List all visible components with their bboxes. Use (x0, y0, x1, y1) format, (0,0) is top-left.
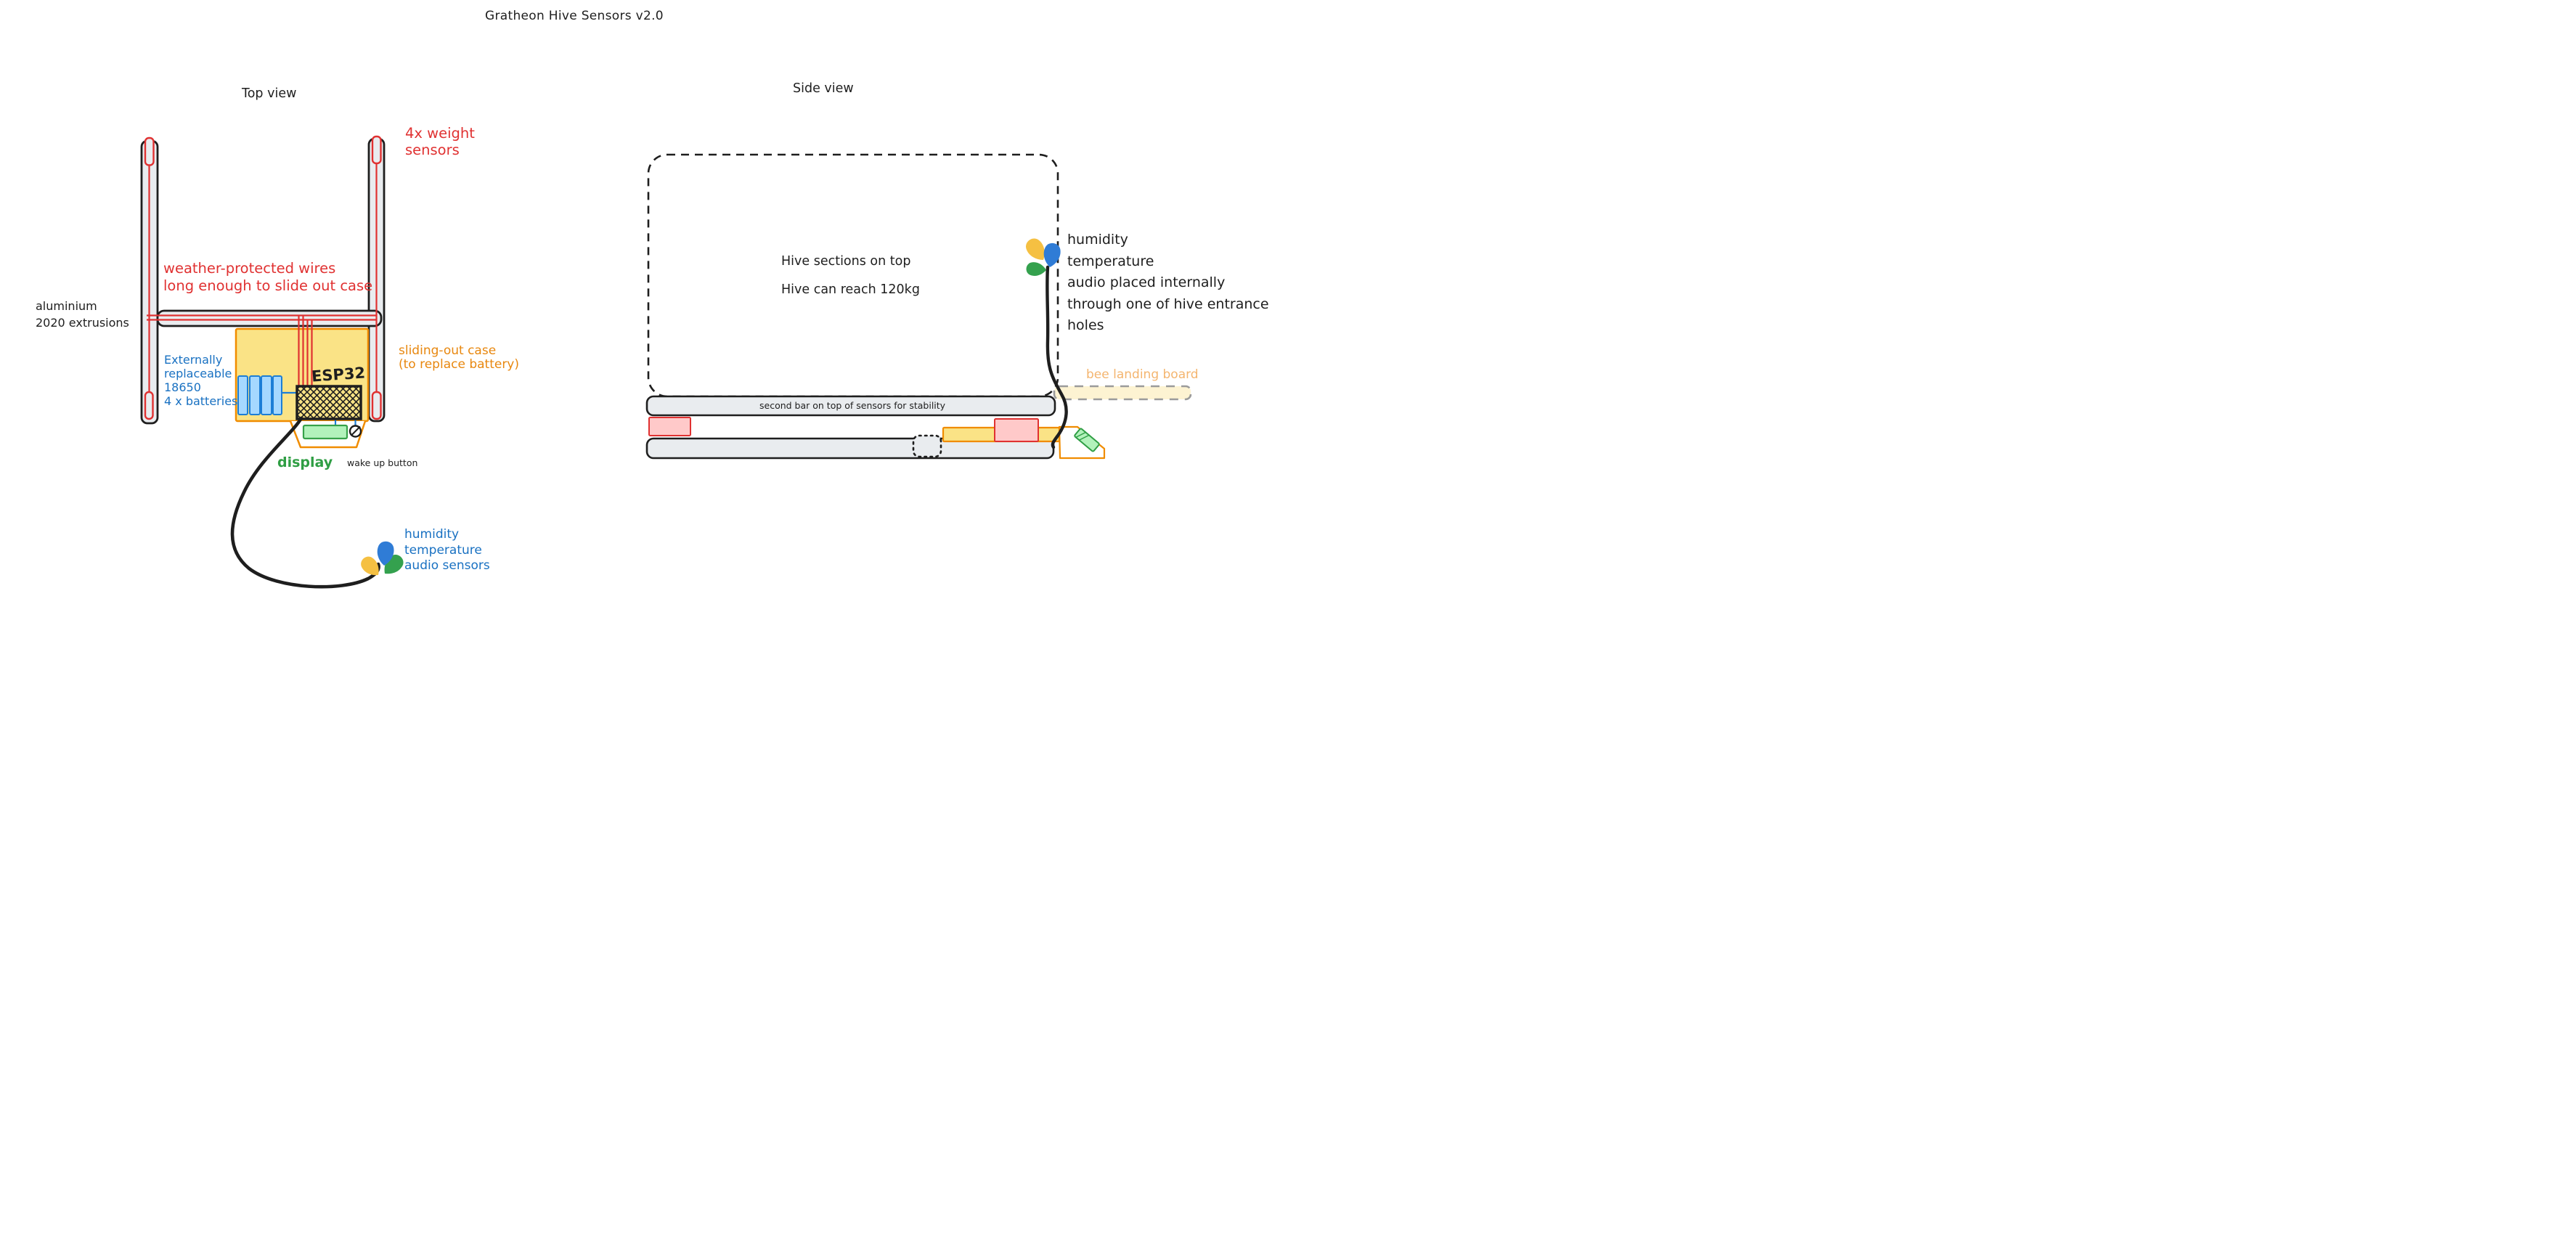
weight-sensor-top-right-upper (372, 136, 381, 163)
hive-weight-label: Hive can reach 120kg (781, 282, 920, 298)
battery-cell (250, 376, 260, 415)
bee-landing-board (1054, 386, 1191, 399)
weight-sensor-top-right-lower (372, 392, 381, 419)
battery-cell (273, 376, 282, 415)
diagram-title: Gratheon Hive Sensors v2.0 (485, 9, 664, 24)
bottom-bar-dotted-notch (913, 436, 941, 457)
display-module (303, 425, 347, 439)
battery-pack (238, 376, 282, 415)
sensor-cluster-top-icon (358, 541, 407, 580)
display-label: display (277, 454, 333, 472)
weight-sensor-side-left (649, 417, 690, 436)
cross-bar (158, 311, 381, 326)
wake-button-label: wake up button (347, 457, 417, 469)
weight-sensor-side-right (995, 419, 1038, 441)
weight-sensor-top-left-lower (145, 392, 153, 419)
extrusions-label: aluminium 2020 extrusions (36, 298, 129, 331)
wake-up-button-icon (350, 426, 361, 437)
weight-sensors-label: 4x weight sensors (405, 125, 475, 158)
internal-sensors-label: humidity temperature audio placed intern… (1067, 229, 1288, 337)
stability-bar-label: second bar on top of sensors for stabili… (759, 400, 945, 412)
batteries-label: Externally replaceable 18650 4 x batteri… (164, 353, 237, 408)
protected-wires-label: weather-protected wires long enough to s… (163, 260, 372, 295)
sliding-case-label: sliding-out case (to replace battery) (399, 344, 519, 372)
side-view-label: Side view (793, 81, 854, 97)
esp32-label: ESP32 (311, 363, 366, 386)
weight-sensor-top-left-upper (145, 138, 154, 166)
esp32-module (297, 386, 361, 419)
top-view-label: Top view (242, 86, 296, 102)
sensor-cluster-label: humidity temperature audio sensors (404, 527, 490, 574)
hive-body-dashed-outline (648, 155, 1058, 396)
hive-sensors-diagram: Gratheon Hive Sensors v2.0 Top view 4x w… (0, 0, 1288, 628)
bee-landing-board-label: bee landing board (1086, 367, 1199, 383)
battery-cell (238, 376, 248, 415)
battery-cell (261, 376, 272, 415)
hive-sections-label: Hive sections on top (781, 254, 910, 270)
